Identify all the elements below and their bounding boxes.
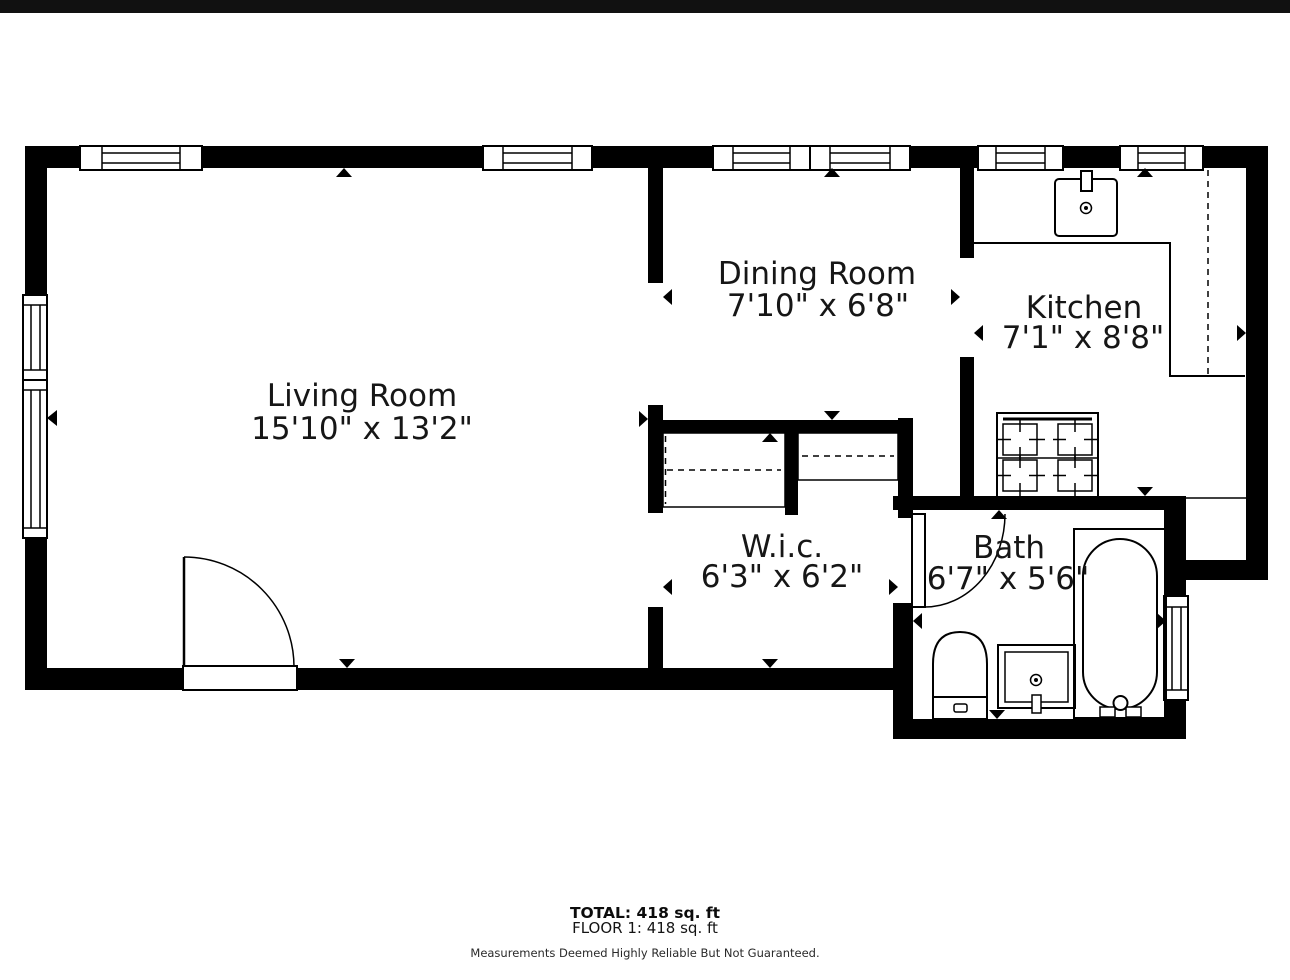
wall-wic-bath-lower: [893, 603, 913, 739]
measure-arrow-icon: [974, 325, 983, 341]
wall-living-dining-divider-upper: [648, 160, 663, 283]
room-dims-kitchen: 7'1" x 8'8": [1002, 320, 1165, 356]
measure-arrow-icon: [663, 289, 672, 305]
closet-shelves: [663, 433, 898, 507]
bathtub-icon: [1074, 529, 1166, 718]
wall-bath-bottom: [893, 719, 1186, 739]
room-dims-bath: 6'7" x 5'6": [927, 561, 1090, 597]
floor-plan-page: Living Room 15'10" x 13'2" Dining Room 7…: [0, 0, 1290, 980]
measure-arrow-icon: [951, 289, 960, 305]
measure-arrow-icon: [336, 168, 352, 177]
kitchen-sink-icon: [1055, 171, 1117, 236]
entry-door-swing-icon: [183, 557, 297, 690]
wall-wic-top: [648, 420, 913, 433]
measure-arrow-icon: [639, 411, 648, 427]
measure-arrow-icon: [339, 659, 355, 668]
room-dims-dining: 7'10" x 6'8": [727, 288, 909, 324]
measure-arrow-icon: [913, 613, 922, 629]
room-dims-wic: 6'3" x 6'2": [701, 559, 864, 595]
wall-right: [1246, 146, 1268, 580]
measure-arrow-icon: [889, 579, 898, 595]
window-icon: [713, 146, 810, 170]
window-icon: [23, 295, 47, 380]
measure-arrow-icon: [989, 710, 1005, 719]
window-icon: [80, 146, 202, 170]
summary-text: TOTAL: 418 sq. ft FLOOR 1: 418 sq. ft Me…: [470, 904, 819, 960]
measure-arrow-icon: [47, 410, 57, 426]
floor-area-text: FLOOR 1: 418 sq. ft: [572, 919, 718, 937]
window-icon: [810, 146, 910, 170]
wall-living-wic-divider-lower: [648, 607, 663, 672]
toilet-icon: [933, 632, 987, 719]
stove-icon: [997, 413, 1098, 497]
wall-closet-divider: [785, 432, 798, 515]
measure-arrow-icon: [762, 433, 778, 442]
measure-arrow-icon: [1137, 487, 1153, 496]
window-icon: [1120, 146, 1203, 170]
wall-dining-kitchen-lower: [960, 357, 974, 510]
wall-top: [25, 146, 1268, 168]
wall-bottom-living: [25, 668, 913, 690]
bath-fixtures: [933, 529, 1166, 719]
bathroom-sink-icon: [998, 645, 1075, 713]
disclaimer-text: Measurements Deemed Highly Reliable But …: [470, 946, 819, 960]
doors: [183, 514, 1005, 690]
measure-arrow-icon: [762, 659, 778, 668]
measure-arrow-icon: [663, 579, 672, 595]
room-label-dining: Dining Room: [718, 256, 916, 292]
top-bar: [0, 0, 1290, 13]
closet-shelf-icon: [663, 433, 785, 507]
window-icon: [1164, 596, 1188, 700]
window-icon: [978, 146, 1063, 170]
window-icon: [23, 380, 47, 538]
room-label-living: Living Room: [267, 378, 457, 414]
measure-arrow-icon: [824, 411, 840, 420]
wall-wic-bath-upper: [898, 418, 913, 518]
wall-dining-kitchen-upper: [960, 160, 974, 258]
measure-arrow-icon: [1237, 325, 1246, 341]
closet-shelf-icon: [798, 433, 898, 480]
window-icon: [483, 146, 592, 170]
wall-bath-top: [893, 496, 1185, 510]
floor-plan-canvas: Living Room 15'10" x 13'2" Dining Room 7…: [0, 0, 1290, 980]
room-dims-living: 15'10" x 13'2": [251, 411, 473, 447]
